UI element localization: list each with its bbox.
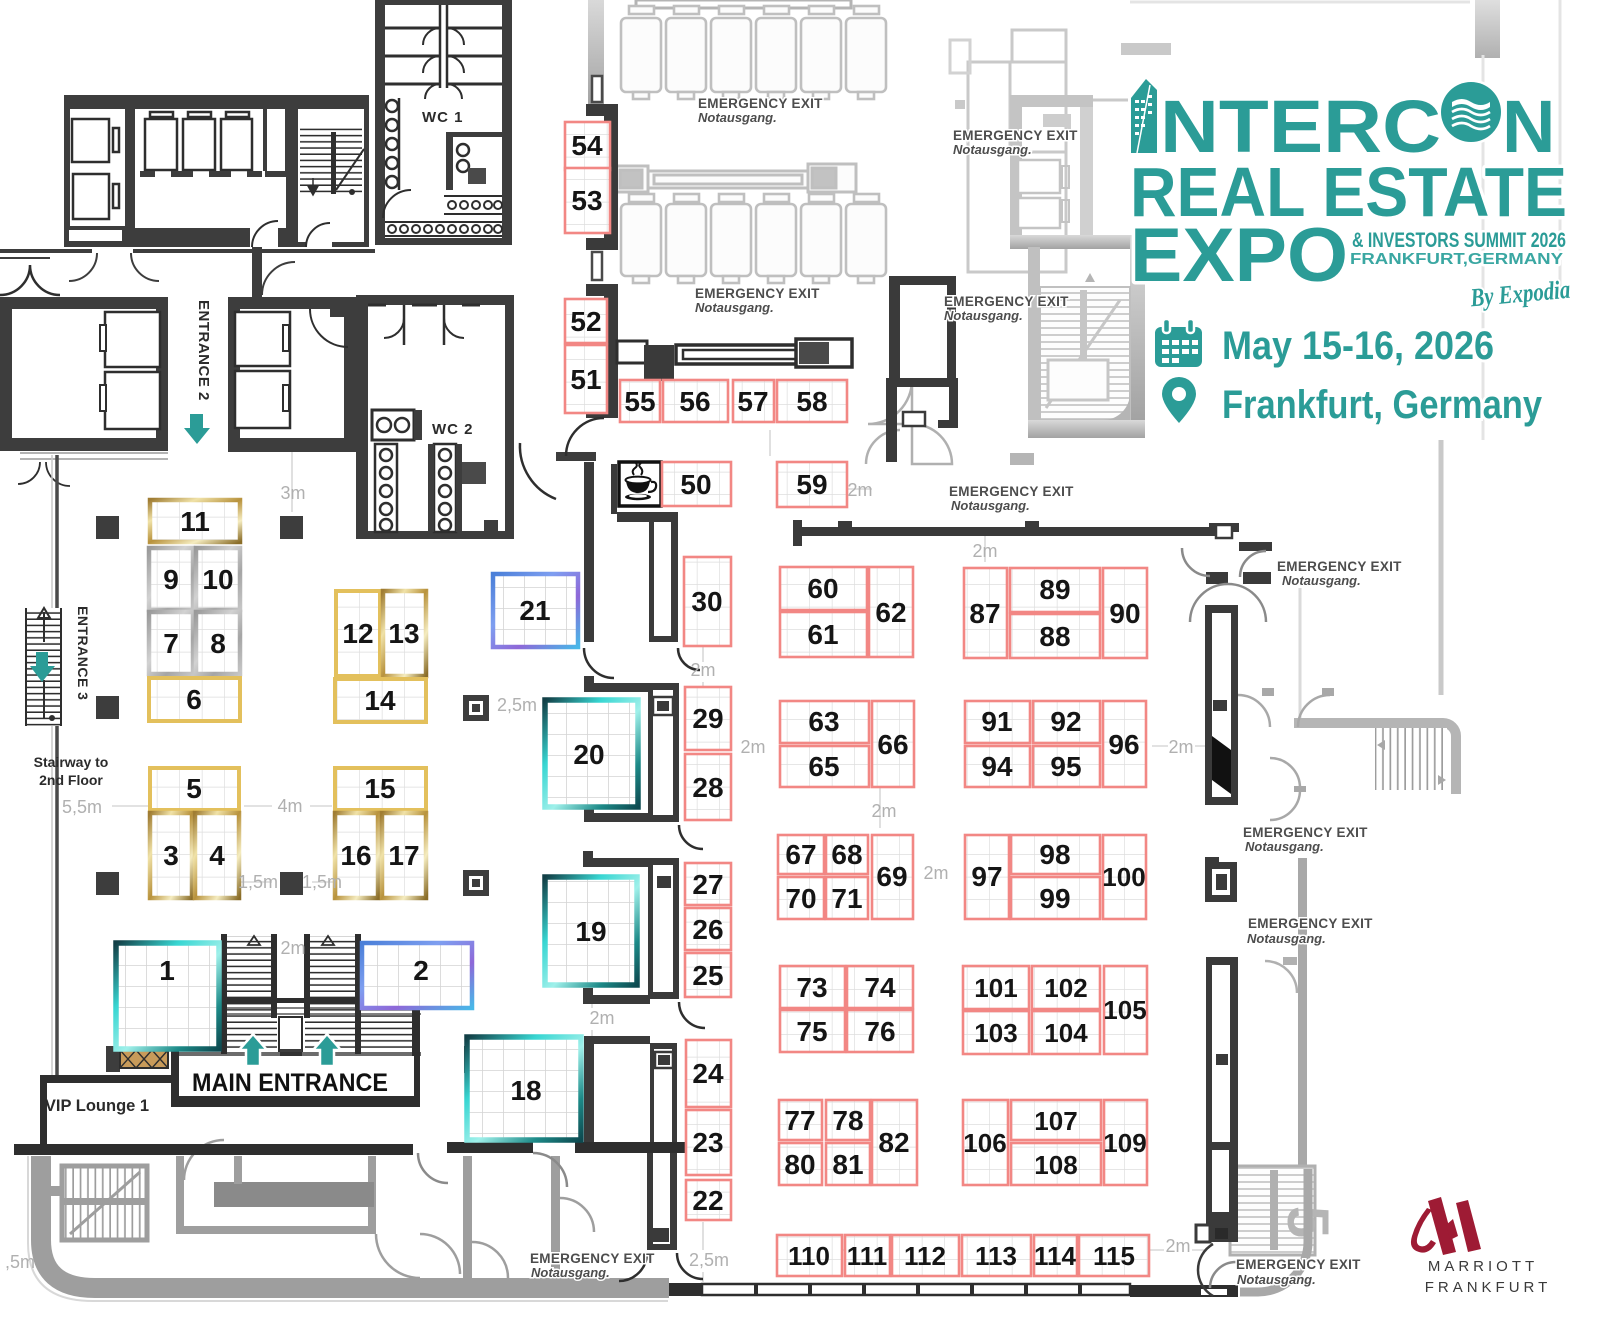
svg-text:EMERGENCY EXIT: EMERGENCY EXIT (1236, 1257, 1361, 1272)
svg-text:24: 24 (692, 1058, 724, 1089)
svg-text:2m: 2m (1168, 737, 1193, 757)
svg-text:78: 78 (832, 1105, 863, 1136)
svg-text:107: 107 (1034, 1106, 1077, 1136)
svg-text:71: 71 (831, 883, 862, 914)
svg-text:115: 115 (1093, 1241, 1135, 1271)
svg-text:1,5m: 1,5m (302, 872, 342, 892)
svg-text:2: 2 (413, 955, 429, 986)
svg-text:EMERGENCY EXIT: EMERGENCY EXIT (530, 1251, 655, 1266)
svg-text:58: 58 (796, 386, 827, 417)
svg-text:102: 102 (1044, 973, 1087, 1003)
svg-text:101: 101 (974, 973, 1017, 1003)
svg-text:99: 99 (1039, 883, 1070, 914)
svg-text:May 15-16, 2026: May 15-16, 2026 (1222, 324, 1494, 368)
svg-text:2m: 2m (1165, 1236, 1190, 1256)
svg-text:51: 51 (570, 364, 601, 395)
svg-text:74: 74 (864, 972, 896, 1003)
svg-text:Notausgang.: Notausgang. (695, 300, 774, 315)
svg-text:95: 95 (1050, 751, 1081, 782)
svg-text:13: 13 (388, 618, 419, 649)
svg-text:12: 12 (342, 618, 373, 649)
svg-text:11: 11 (180, 506, 210, 537)
svg-text:100: 100 (1102, 862, 1145, 892)
svg-text:4m: 4m (277, 796, 302, 816)
svg-text:25: 25 (692, 960, 723, 991)
svg-text:59: 59 (796, 469, 827, 500)
svg-text:EMERGENCY EXIT: EMERGENCY EXIT (949, 484, 1074, 499)
svg-text:110: 110 (788, 1241, 830, 1271)
svg-text:106: 106 (963, 1128, 1006, 1158)
svg-text:2m: 2m (972, 541, 997, 561)
svg-text:EMERGENCY EXIT: EMERGENCY EXIT (695, 286, 820, 301)
svg-text:2,5m: 2,5m (497, 695, 537, 715)
svg-text:17: 17 (388, 840, 419, 871)
svg-text:VIP Lounge 1: VIP Lounge 1 (45, 1097, 149, 1115)
svg-text:87: 87 (969, 598, 1000, 629)
svg-text:55: 55 (624, 386, 655, 417)
svg-text:EMERGENCY EXIT: EMERGENCY EXIT (953, 128, 1078, 143)
svg-text:10: 10 (202, 564, 233, 595)
svg-text:Notausgang.: Notausgang. (1247, 931, 1326, 946)
svg-text:21: 21 (519, 595, 550, 626)
svg-text:65: 65 (808, 751, 839, 782)
svg-text:2,5m: 2,5m (689, 1250, 729, 1270)
svg-text:61: 61 (807, 619, 838, 650)
svg-text:60: 60 (807, 573, 838, 604)
svg-text:EMERGENCY EXIT: EMERGENCY EXIT (944, 294, 1069, 309)
svg-text:77: 77 (784, 1105, 815, 1136)
svg-text:EMERGENCY EXIT: EMERGENCY EXIT (698, 96, 823, 111)
svg-text:109: 109 (1103, 1128, 1146, 1158)
svg-text:26: 26 (692, 914, 723, 945)
svg-text:104: 104 (1044, 1018, 1088, 1048)
svg-text:FRANKFURT,GERMANY: FRANKFURT,GERMANY (1350, 251, 1563, 268)
svg-text:75: 75 (796, 1016, 827, 1047)
svg-text:2m: 2m (589, 1008, 614, 1028)
svg-text:EMERGENCY EXIT: EMERGENCY EXIT (1248, 916, 1373, 931)
svg-text:Notausgang.: Notausgang. (698, 110, 777, 125)
svg-text:89: 89 (1039, 574, 1070, 605)
svg-text:92: 92 (1050, 706, 1081, 737)
svg-text:MAIN ENTRANCE: MAIN ENTRANCE (192, 1069, 388, 1097)
svg-text:2nd Floor: 2nd Floor (39, 772, 103, 788)
svg-text:9: 9 (163, 564, 179, 595)
svg-text:Notausgang.: Notausgang. (1282, 573, 1361, 588)
svg-text:7: 7 (163, 628, 179, 659)
svg-text:15: 15 (364, 773, 395, 804)
svg-text:ENTRANCE 3: ENTRANCE 3 (75, 606, 91, 700)
svg-text:FRANKFURT: FRANKFURT (1425, 1279, 1552, 1296)
svg-text:52: 52 (570, 306, 601, 337)
svg-text:& INVESTORS SUMMIT 2026: & INVESTORS SUMMIT 2026 (1352, 229, 1566, 252)
svg-text:28: 28 (692, 772, 723, 803)
svg-text:8: 8 (210, 628, 226, 659)
svg-text:WC 1: WC 1 (422, 109, 464, 126)
svg-text:Notausgang.: Notausgang. (953, 142, 1032, 157)
svg-text:112: 112 (904, 1241, 946, 1271)
svg-text:3m: 3m (280, 483, 305, 503)
svg-text:27: 27 (692, 869, 723, 900)
svg-text:68: 68 (831, 839, 862, 870)
svg-text:1,5m: 1,5m (238, 872, 278, 892)
svg-text:63: 63 (808, 706, 839, 737)
svg-text:57: 57 (737, 386, 768, 417)
svg-text:94: 94 (981, 751, 1013, 782)
svg-text:96: 96 (1108, 729, 1139, 760)
svg-text:WC 2: WC 2 (432, 421, 474, 438)
svg-text:2m: 2m (847, 480, 872, 500)
svg-text:108: 108 (1034, 1150, 1077, 1180)
svg-text:EMERGENCY EXIT: EMERGENCY EXIT (1243, 825, 1368, 840)
svg-text:103: 103 (974, 1018, 1017, 1048)
svg-text:14: 14 (364, 685, 396, 716)
svg-text:,5m: ,5m (5, 1252, 35, 1272)
svg-text:Frankfurt, Germany: Frankfurt, Germany (1222, 383, 1543, 427)
svg-text:88: 88 (1039, 621, 1070, 652)
svg-text:5: 5 (186, 773, 202, 804)
svg-text:67: 67 (785, 839, 816, 870)
svg-text:29: 29 (692, 703, 723, 734)
svg-text:2m: 2m (280, 938, 305, 958)
svg-text:18: 18 (510, 1075, 541, 1106)
svg-text:97: 97 (971, 861, 1002, 892)
svg-text:80: 80 (784, 1149, 815, 1180)
svg-text:98: 98 (1039, 839, 1070, 870)
svg-text:1: 1 (159, 955, 175, 986)
svg-text:MARRIOTT: MARRIOTT (1428, 1258, 1538, 1275)
svg-text:Notausgang.: Notausgang. (951, 498, 1030, 513)
svg-text:Notausgang.: Notausgang. (1245, 839, 1324, 854)
svg-text:EMERGENCY EXIT: EMERGENCY EXIT (1277, 559, 1402, 574)
svg-text:23: 23 (692, 1127, 723, 1158)
svg-text:Notausgang.: Notausgang. (531, 1265, 610, 1280)
svg-text:76: 76 (864, 1016, 895, 1047)
svg-text:113: 113 (975, 1241, 1017, 1271)
svg-text:105: 105 (1103, 995, 1146, 1025)
svg-text:66: 66 (877, 729, 908, 760)
svg-text:69: 69 (876, 861, 907, 892)
svg-text:ENTRANCE 2: ENTRANCE 2 (195, 300, 212, 401)
svg-text:82: 82 (878, 1127, 909, 1158)
svg-text:2m: 2m (923, 863, 948, 883)
svg-text:114: 114 (1034, 1241, 1076, 1271)
svg-text:62: 62 (875, 597, 906, 628)
svg-text:6: 6 (186, 684, 202, 715)
svg-text:2m: 2m (690, 660, 715, 680)
svg-text:90: 90 (1109, 598, 1140, 629)
svg-text:53: 53 (571, 185, 602, 216)
svg-text:3: 3 (163, 840, 179, 871)
svg-text:19: 19 (575, 916, 606, 947)
svg-text:2m: 2m (871, 801, 896, 821)
svg-text:91: 91 (981, 706, 1012, 737)
svg-text:56: 56 (679, 386, 710, 417)
svg-text:30: 30 (691, 586, 722, 617)
svg-text:Stairway to: Stairway to (34, 754, 109, 770)
svg-text:20: 20 (573, 739, 604, 770)
svg-text:73: 73 (796, 972, 827, 1003)
svg-text:50: 50 (680, 469, 711, 500)
svg-text:Notausgang.: Notausgang. (944, 308, 1023, 323)
svg-text:Notausgang.: Notausgang. (1237, 1272, 1316, 1287)
svg-text:2m: 2m (740, 737, 765, 757)
svg-text:EXPO: EXPO (1130, 213, 1348, 298)
svg-text:81: 81 (832, 1149, 863, 1180)
svg-text:54: 54 (571, 130, 603, 161)
svg-text:111: 111 (847, 1241, 888, 1271)
svg-text:16: 16 (340, 840, 371, 871)
svg-text:4: 4 (209, 840, 225, 871)
svg-text:70: 70 (785, 883, 816, 914)
svg-text:5,5m: 5,5m (62, 797, 102, 817)
svg-text:22: 22 (692, 1185, 723, 1216)
